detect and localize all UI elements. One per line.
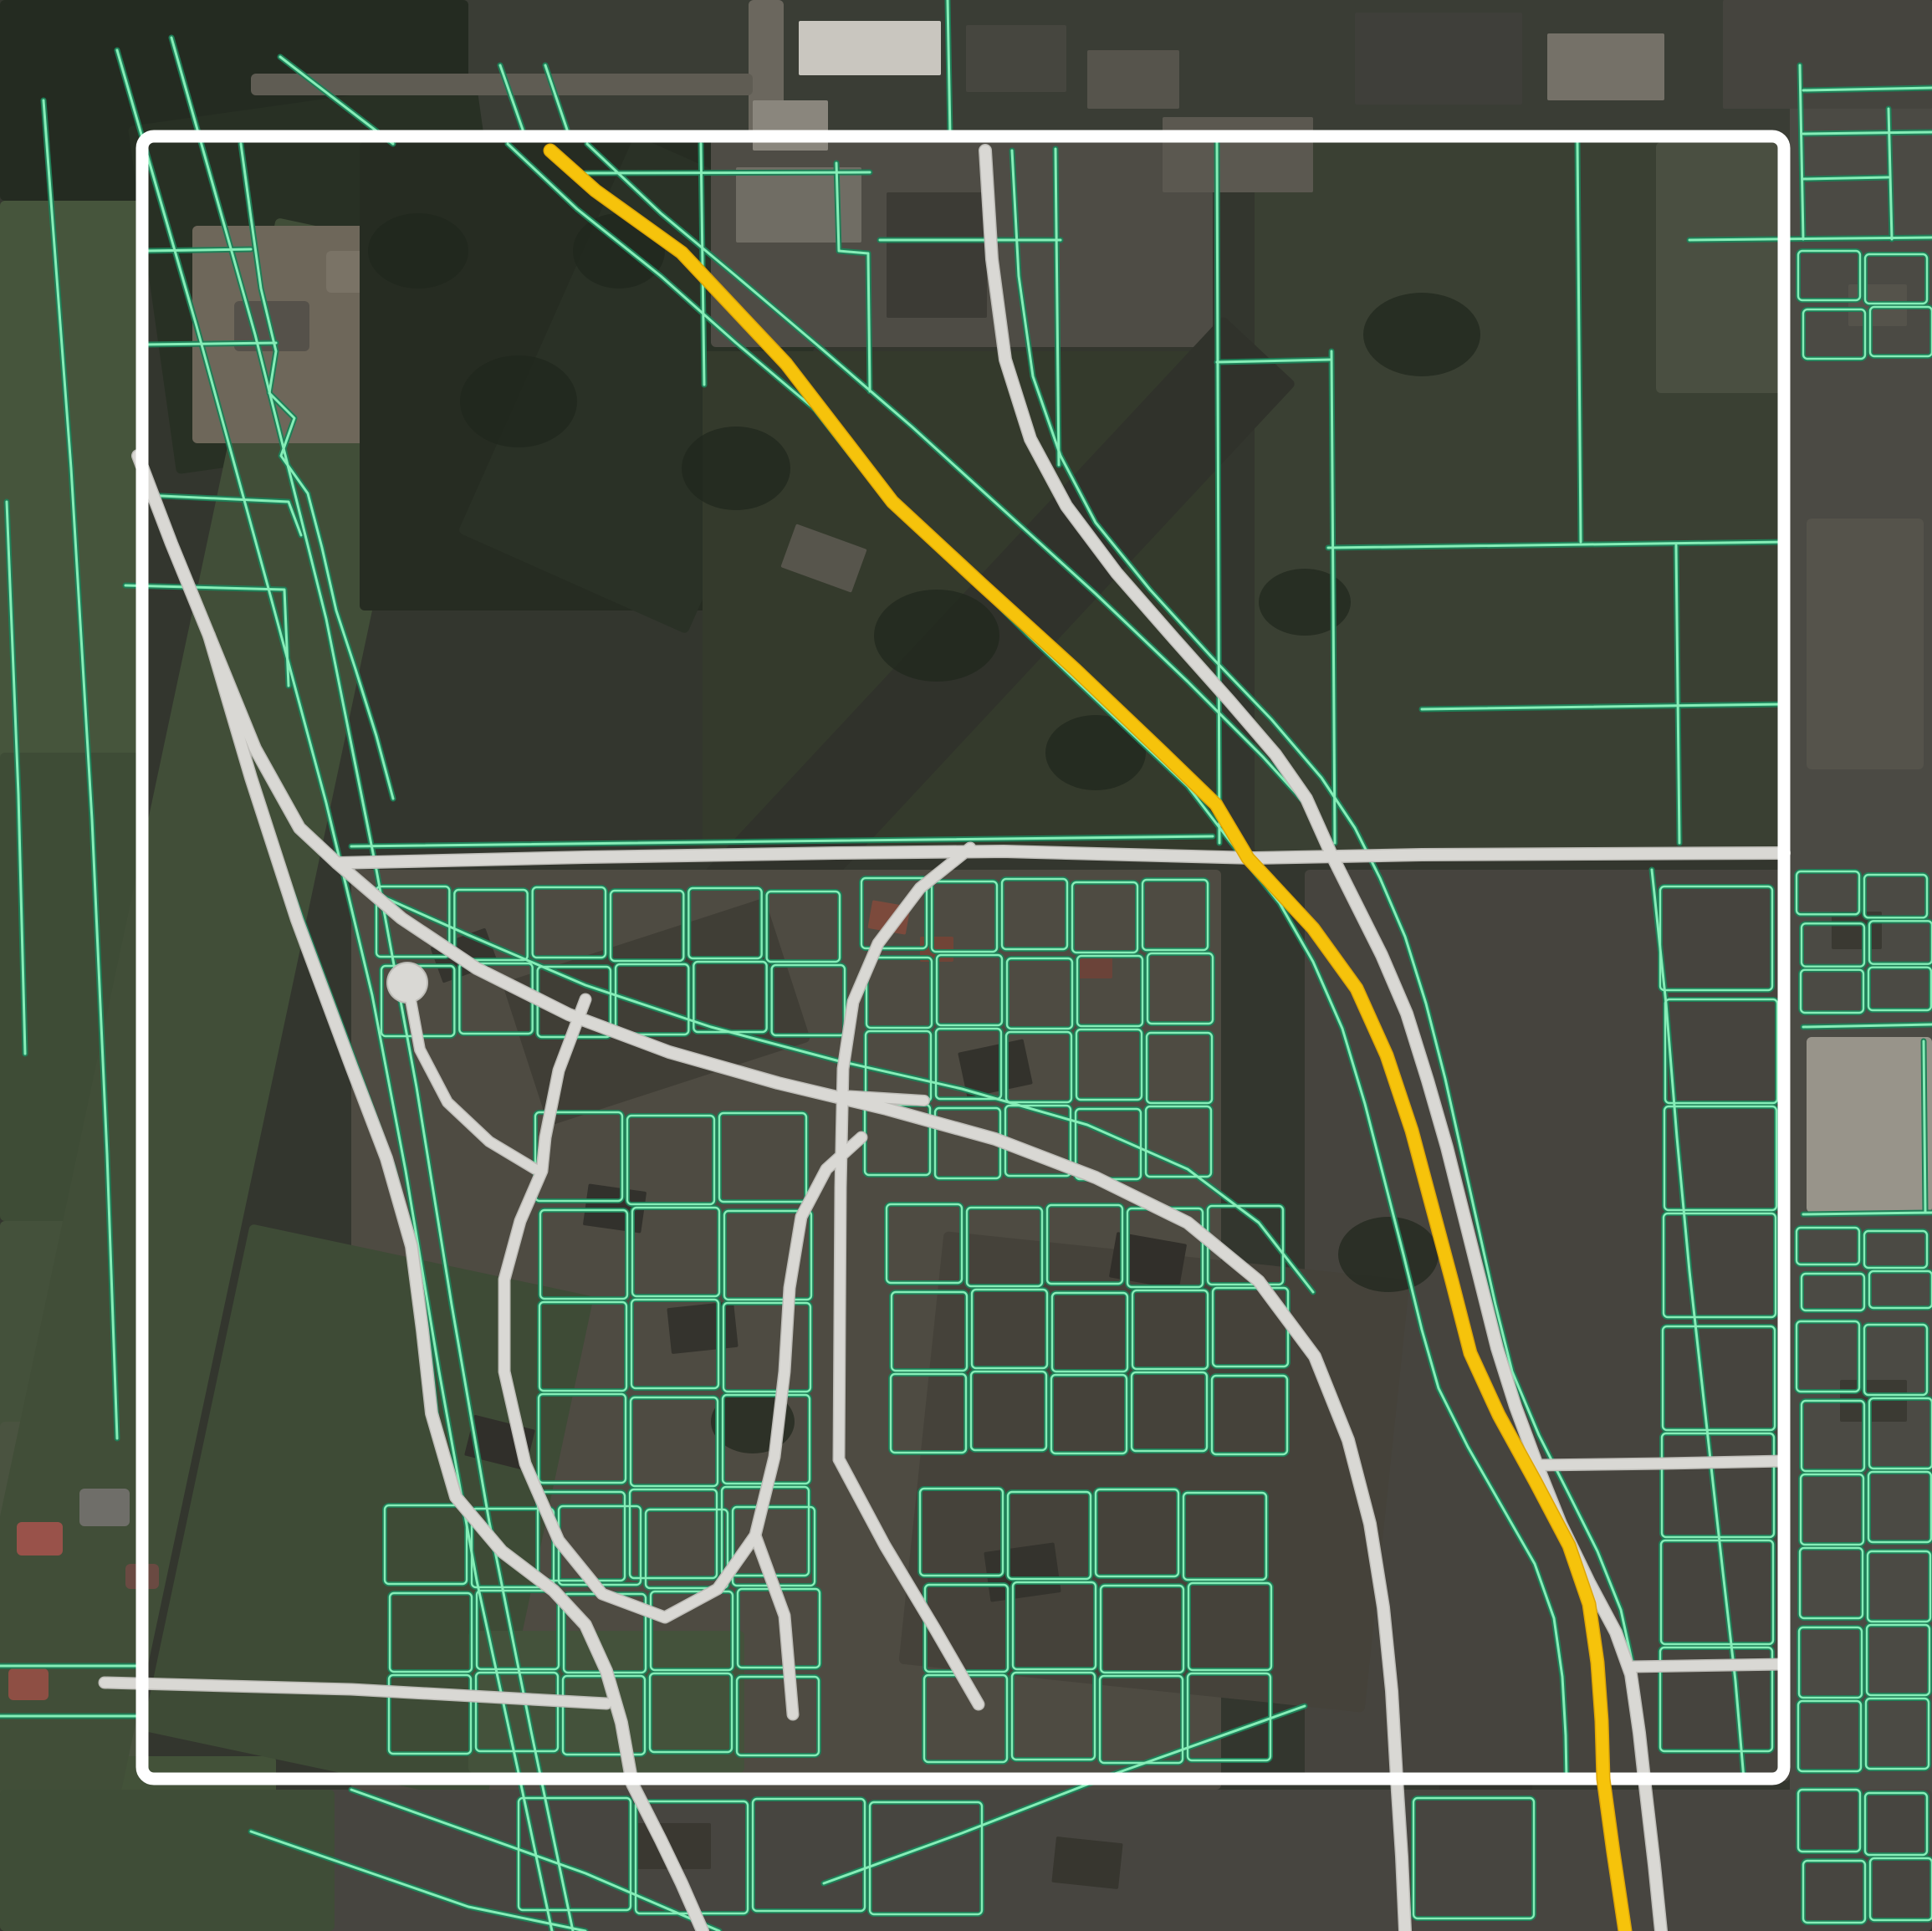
map-viewport[interactable] — [0, 0, 1932, 1931]
satellite-map-canvas — [0, 0, 1932, 1931]
satellite-base-layer — [0, 0, 1932, 1931]
